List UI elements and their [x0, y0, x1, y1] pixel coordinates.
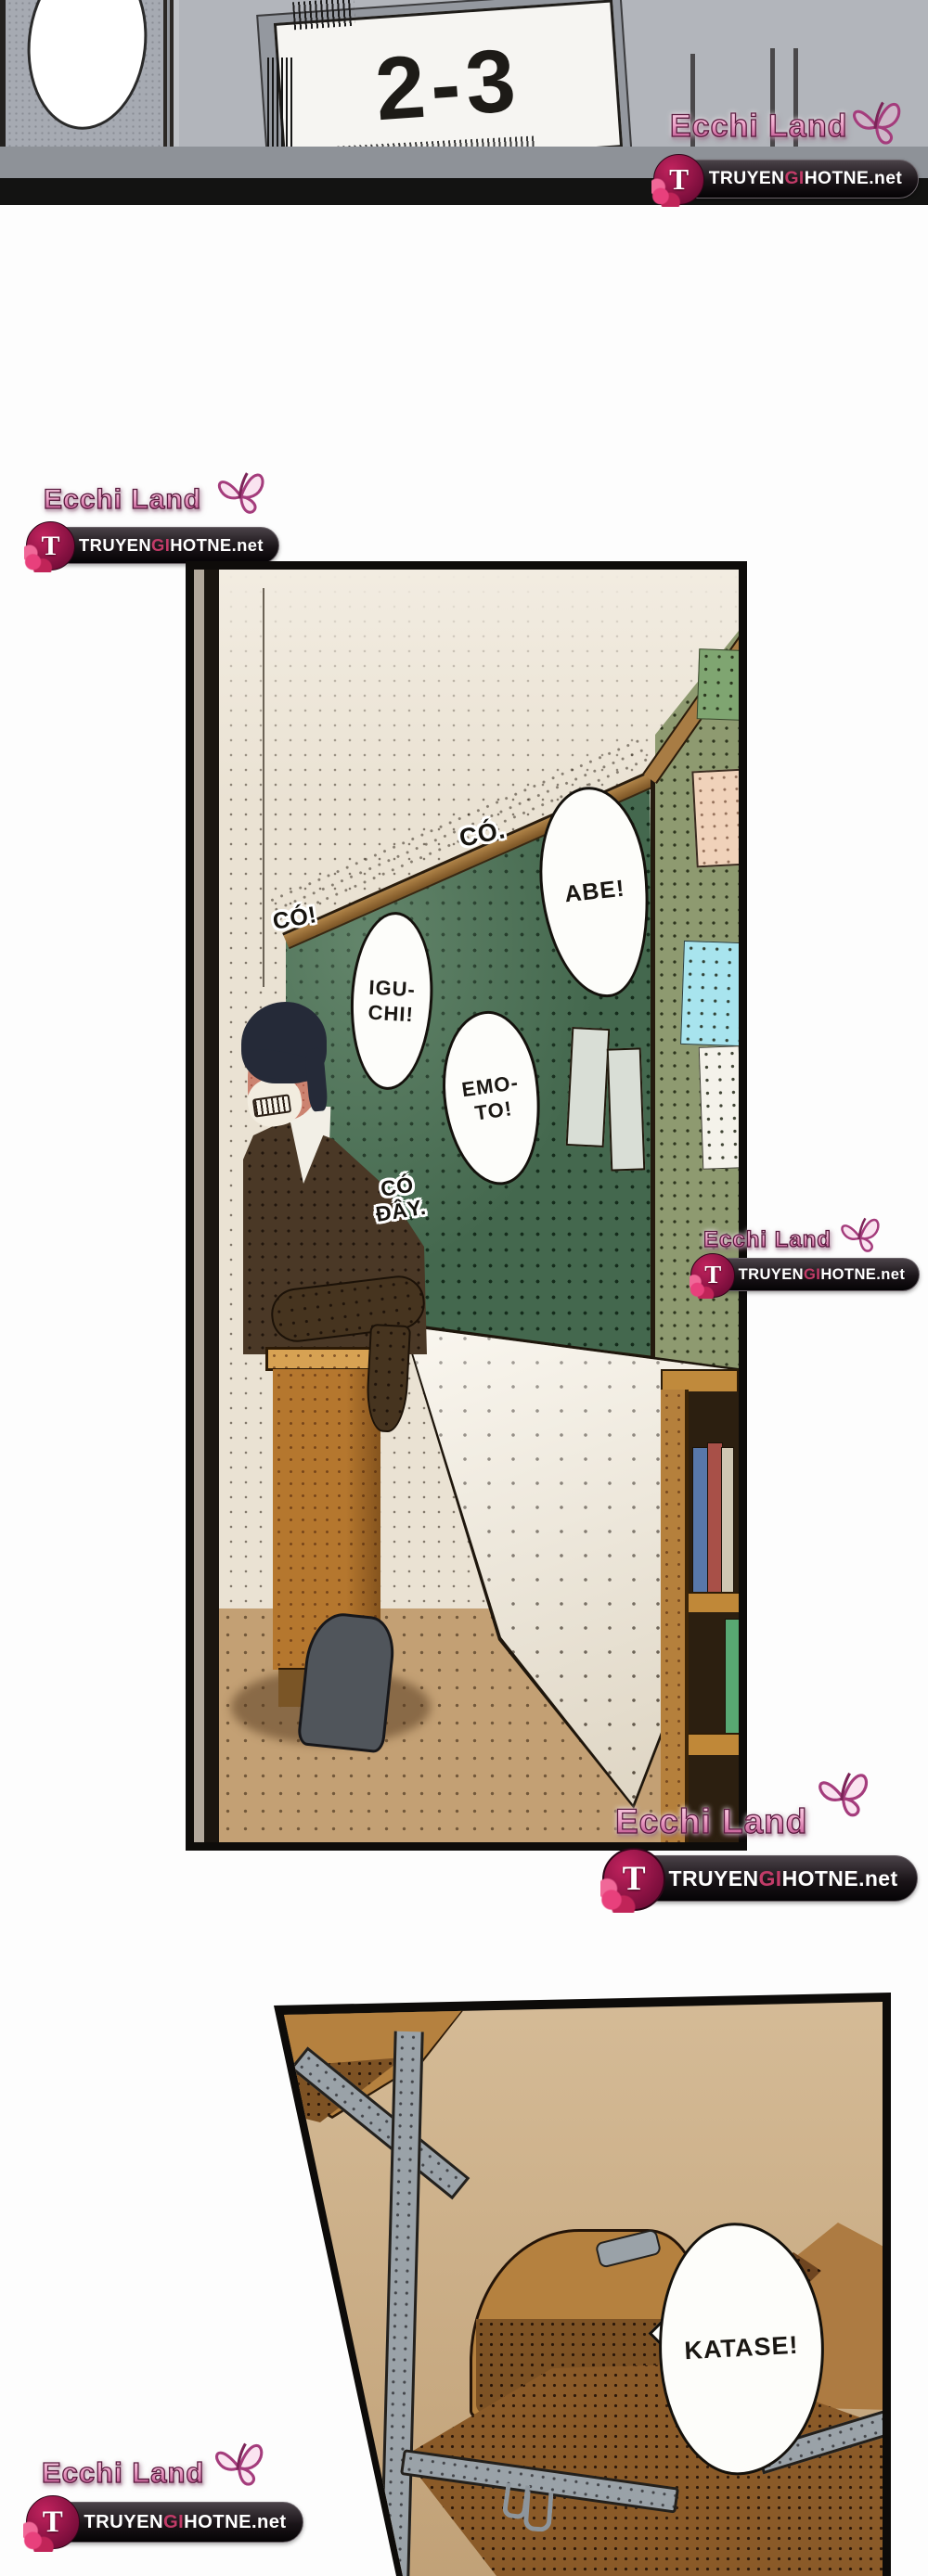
watermark-site-text: TRUYENGIHOTNE.net	[79, 535, 264, 556]
flower-decoration	[651, 176, 682, 207]
bookshelf-shelf-lower	[689, 1733, 739, 1755]
watermark-top-right: Ecchi Land T TRUYENGIHOTNE.net	[650, 93, 928, 209]
watermark-brand: Ecchi Land	[703, 1227, 831, 1253]
speech-text-katase: KATASE!	[684, 2330, 800, 2367]
watermark-site-text: TRUYENGIHOTNE.net	[669, 1866, 898, 1891]
site-logo-icon: T	[690, 1253, 735, 1298]
teacher-cuff	[365, 1324, 411, 1433]
site-logo-icon: T	[26, 2495, 80, 2549]
bookshelf-shelf	[689, 1592, 739, 1612]
watermark-brand: Ecchi Land	[615, 1802, 807, 1841]
door-sign-text: 2-3	[372, 30, 524, 142]
flower-decoration	[600, 1876, 638, 1913]
wall-corner-line	[263, 588, 264, 987]
flower-decoration	[23, 2519, 56, 2552]
butterfly-icon	[211, 460, 274, 523]
flower-decoration	[690, 1273, 715, 1299]
hatch-above-sign	[292, 0, 355, 30]
watermark-site-badge: T TRUYENGIHOTNE.net	[605, 1855, 918, 1902]
manga-page: 2-3 Ecchi Land T TRUYENGIHOTNE.net Ec	[0, 0, 928, 2576]
watermark-site-text: TRUYENGIHOTNE.net	[739, 1265, 906, 1284]
flower-decoration	[24, 543, 54, 572]
door-frame-strip	[194, 570, 204, 1842]
site-logo-icon: T	[653, 154, 705, 206]
chalk-eraser-left	[566, 1027, 611, 1147]
bag-hook-2	[523, 2491, 554, 2532]
site-logo-icon: T	[26, 521, 75, 570]
speech-text-emoto: EMO-TO!	[460, 1069, 524, 1127]
book-green	[725, 1619, 741, 1735]
pinned-paper-white	[699, 1045, 744, 1169]
pinned-paper-green	[697, 648, 743, 721]
speech-text-iguchi: IGU-CHI!	[367, 974, 416, 1028]
speech-text-abe: ABE!	[563, 875, 626, 910]
watermark-site-badge: T TRUYENGIHOTNE.net	[28, 527, 279, 564]
watermark-bottom-left: Ecchi Land T TRUYENGIHOTNE.net	[23, 2430, 302, 2560]
panel-classroom: ABE! IGU-CHI! EMO-TO! CÓ. CÓ! CÓĐÂY.	[186, 561, 747, 1851]
site-logo-icon: T	[602, 1848, 665, 1911]
panel-edge-shadow	[0, 0, 6, 148]
panel-desk: KATASE!	[274, 1993, 891, 2576]
watermark-site-text: TRUYENGIHOTNE.net	[709, 169, 903, 189]
watermark-bottom-main: Ecchi Land T TRUYENGIHOTNE.net	[599, 1756, 905, 1914]
butterfly-icon	[835, 1208, 887, 1260]
watermark-site-badge: T TRUYENGIHOTNE.net	[655, 160, 919, 199]
pinned-paper-peach	[691, 769, 746, 868]
watermark-brand: Ecchi Land	[670, 109, 847, 145]
butterfly-icon	[208, 2430, 273, 2495]
chalk-eraser-right	[607, 1047, 646, 1171]
pinned-paper-cyan	[680, 941, 743, 1046]
butterfly-icon	[811, 1760, 878, 1826]
watermark-site-badge: T TRUYENGIHOTNE.net	[692, 1258, 920, 1291]
door-frame-dark-strip	[204, 570, 219, 1842]
butterfly-icon	[845, 89, 910, 154]
panel-desk-interior: KATASE!	[274, 1993, 891, 2576]
watermark-site-badge: T TRUYENGIHOTNE.net	[28, 2502, 303, 2543]
watermark-brand: Ecchi Land	[44, 484, 201, 516]
watermark-site-text: TRUYENGIHOTNE.net	[84, 2512, 286, 2533]
watermark-mid-right: Ecchi Land T TRUYENGIHOTNE.net	[687, 1209, 891, 1301]
book-cream	[721, 1447, 734, 1594]
watermark-brand: Ecchi Land	[42, 2456, 204, 2490]
